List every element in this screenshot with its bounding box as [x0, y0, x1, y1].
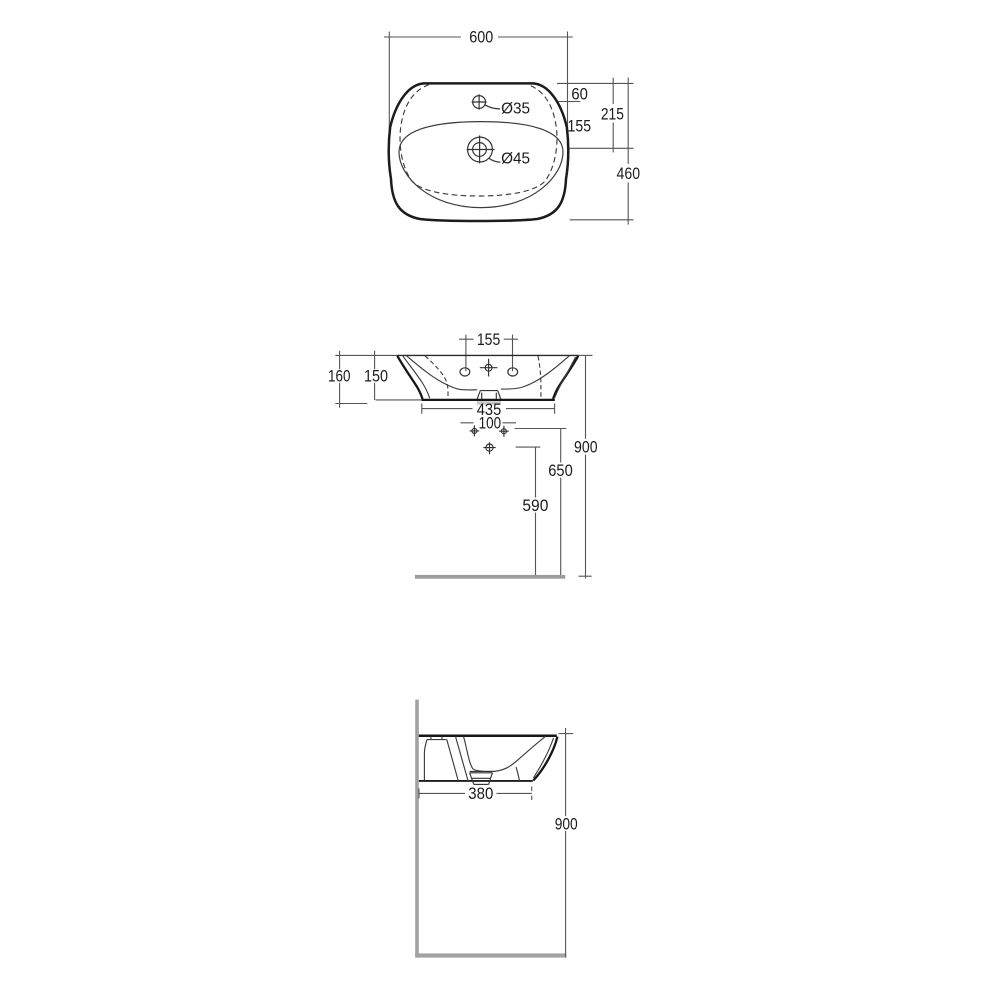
svg-text:60: 60	[571, 86, 588, 104]
svg-text:460: 460	[617, 165, 641, 183]
svg-text:Ø45: Ø45	[501, 151, 530, 168]
svg-text:155: 155	[568, 118, 592, 136]
svg-text:590: 590	[522, 497, 548, 515]
svg-text:100: 100	[479, 414, 502, 432]
svg-text:900: 900	[574, 439, 598, 457]
svg-text:160: 160	[328, 367, 351, 385]
svg-text:Ø35: Ø35	[501, 101, 530, 118]
svg-text:215: 215	[601, 106, 624, 124]
svg-text:150: 150	[364, 367, 388, 385]
svg-text:155: 155	[477, 331, 501, 349]
svg-text:650: 650	[548, 462, 573, 480]
svg-text:380: 380	[468, 785, 493, 803]
svg-text:900: 900	[555, 816, 578, 834]
svg-text:600: 600	[469, 29, 493, 47]
